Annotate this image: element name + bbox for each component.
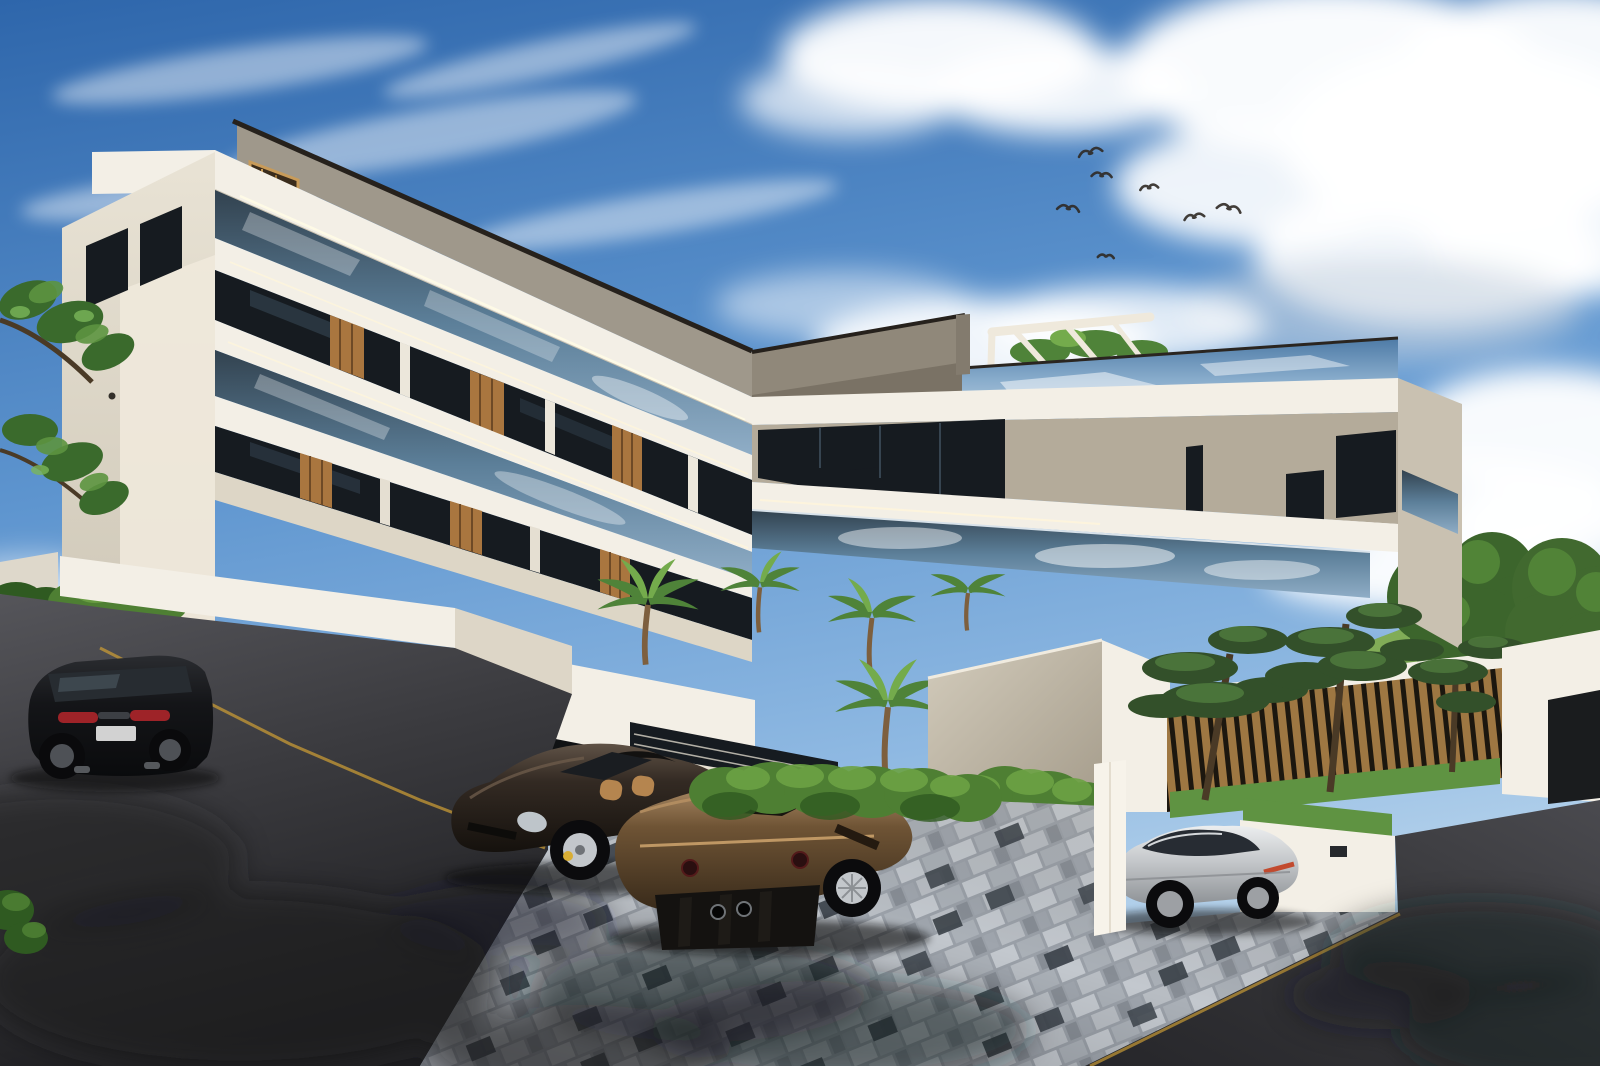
exhaust-tip <box>144 762 160 769</box>
tailgate-trim <box>98 712 130 719</box>
taillight <box>58 712 98 723</box>
right-garage-opening <box>1548 690 1600 804</box>
exhaust-tip <box>737 902 751 916</box>
balcony-fin <box>688 455 698 513</box>
wheel-rim <box>1247 887 1269 909</box>
parapet-corner-post <box>956 314 970 375</box>
wheel-rim <box>50 744 74 768</box>
balcony-fin <box>380 478 390 526</box>
wheel-rim <box>159 739 181 761</box>
exhaust-tip <box>74 766 90 773</box>
taillight <box>792 852 808 868</box>
taillight <box>130 710 170 721</box>
wheel-rim <box>1157 891 1183 917</box>
exhaust-tip <box>711 905 725 919</box>
rim-spokes <box>838 874 866 902</box>
balcony-fin <box>545 399 555 455</box>
facade-light-fixture <box>109 393 116 400</box>
wheel-hub <box>575 845 585 855</box>
balcony-fin <box>400 342 410 398</box>
render-canvas <box>0 0 1600 1066</box>
license-plate <box>96 726 136 741</box>
brake-caliper <box>563 851 573 861</box>
taillight <box>682 860 698 876</box>
architectural-render <box>0 0 1600 1066</box>
car-shadow <box>1095 909 1315 935</box>
wall-vent <box>1330 846 1347 857</box>
balcony-fin <box>530 526 540 573</box>
